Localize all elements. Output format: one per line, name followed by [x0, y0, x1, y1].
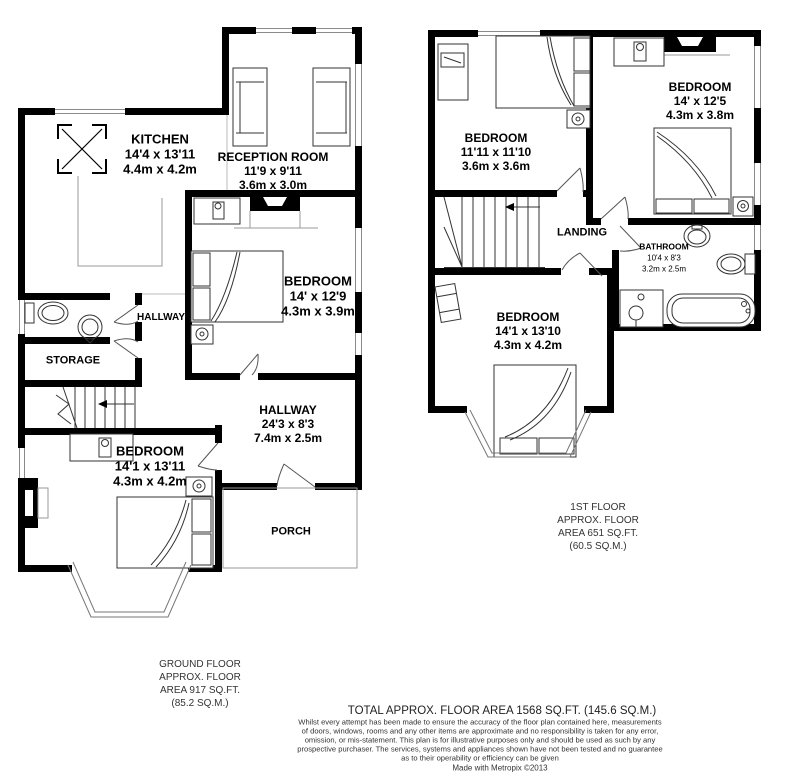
room-name: RECEPTION ROOM	[218, 150, 329, 164]
caption-line: GROUND FLOOR	[159, 658, 241, 671]
room-dims-ft: 11'11 x 11'10	[461, 145, 531, 159]
room-name: HALLWAY	[254, 403, 322, 417]
hallway-main-label: HALLWAY 24'3 x 8'3 7.4m x 2.5m	[254, 403, 322, 445]
kitchen-table-icon	[58, 125, 106, 173]
dresser-icon	[614, 38, 664, 66]
room-name: BEDROOM	[113, 444, 187, 459]
room-dims-ft: 14' x 12'5	[666, 94, 734, 108]
disclaimer-line: of doors, windows, rooms and any other i…	[297, 727, 662, 736]
room-dims-m: 4.3m x 4.2m	[113, 474, 187, 489]
first-bedroom-left-label: BEDROOM 11'11 x 11'10 3.6m x 3.6m	[461, 131, 531, 173]
wc-fixtures	[25, 302, 102, 343]
bathroom-label: BATHROOM 10'4 x 8'3 3.2m x 2.5m	[639, 242, 688, 275]
room-dims-m: 4.3m x 3.8m	[666, 108, 734, 122]
double-bed-icon	[654, 128, 731, 214]
room-name: BEDROOM	[666, 80, 734, 94]
first-bedroom-right-label: BEDROOM 14' x 12'5 4.3m x 3.8m	[666, 80, 734, 122]
double-bed-icon	[117, 497, 213, 568]
room-name: BEDROOM	[461, 131, 531, 145]
first-floor-stairs	[444, 197, 545, 268]
room-dims-m: 3.2m x 2.5m	[639, 264, 688, 275]
stairs-down-arrow-icon	[98, 400, 107, 408]
caption-line: 1ST FLOOR	[557, 501, 639, 514]
desk-icon	[438, 44, 468, 100]
floor-plan-page: KITCHEN 14'4 x 13'11 4.4m x 4.2m RECEPTI…	[0, 0, 800, 779]
caption-line: AREA 651 SQ.FT.	[557, 527, 639, 540]
disclaimer-line: prospective purchaser. The services, sys…	[297, 745, 662, 754]
room-name: LANDING	[557, 227, 607, 240]
room-name: HALLWAY	[137, 312, 185, 324]
room-name: STORAGE	[46, 355, 100, 368]
bedroom-right-furniture	[614, 38, 753, 216]
room-name: BATHROOM	[639, 242, 688, 253]
storage-label: STORAGE	[46, 355, 100, 368]
ground-floor-stairs	[56, 387, 135, 428]
double-bed-icon	[496, 36, 590, 108]
first-bedroom-front-label: BEDROOM 14'1 x 13'10 4.3m x 4.2m	[494, 310, 562, 352]
caption-line: (85.2 SQ.M.)	[159, 697, 241, 710]
room-dims-ft: 11'9 x 9'11	[218, 164, 329, 178]
room-dims-ft: 24'3 x 8'3	[254, 417, 322, 431]
bathroom-fixtures	[620, 225, 755, 327]
double-bed-icon	[191, 251, 283, 322]
landing-label: LANDING	[557, 227, 607, 240]
bathtub-icon	[667, 294, 755, 327]
first-floor-caption: 1ST FLOOR APPROX. FLOOR AREA 651 SQ.FT. …	[557, 501, 639, 553]
room-dims-m: 7.4m x 2.5m	[254, 431, 322, 445]
total-area-text: TOTAL APPROX. FLOOR AREA 1568 SQ.FT. (14…	[348, 705, 656, 717]
disclaimer-line: omission, or mis-statement. This plan is…	[297, 736, 662, 745]
vanity-basin-icon	[620, 290, 663, 327]
room-name: PORCH	[271, 526, 311, 539]
disclaimer-line: as to their operability or efficiency ca…	[297, 754, 662, 763]
room-dims-ft: 14'1 x 13'11	[113, 459, 187, 474]
bedroom-left-furniture	[438, 36, 590, 128]
hallway-small-label: HALLWAY	[137, 312, 185, 324]
reception-room-label: RECEPTION ROOM 11'9 x 9'11 3.6m x 3.0m	[218, 150, 329, 192]
room-name: BEDROOM	[494, 310, 562, 324]
room-dims-m: 3.6m x 3.6m	[461, 159, 531, 173]
bedroom-rear-label: BEDROOM 14' x 12'9 4.3m x 3.9m	[281, 274, 355, 319]
bedroom-front-label: BEDROOM 14'1 x 13'11 4.3m x 4.2m	[113, 444, 187, 489]
room-dims-ft: 14'4 x 13'11	[123, 147, 197, 162]
room-dims-m: 3.6m x 3.0m	[218, 178, 329, 192]
nightstand-lamp-icon	[186, 477, 212, 496]
chimney-breast-icon	[234, 197, 318, 228]
nightstand-lamp-icon	[191, 325, 213, 344]
nightstand-lamp-icon	[567, 110, 590, 128]
metropix-credit-text: Made with Metropix ©2013	[452, 764, 547, 773]
room-dims-ft: 10'4 x 8'3	[639, 253, 688, 264]
nightstand-lamp-icon	[733, 197, 753, 216]
room-name: KITCHEN	[123, 132, 197, 147]
kitchen-label: KITCHEN 14'4 x 13'11 4.4m x 4.2m	[123, 132, 197, 177]
dresser-icon	[194, 198, 240, 224]
double-bed-icon	[494, 365, 576, 457]
ground-floor-drawing	[16, 26, 364, 617]
kitchen-counter-icon	[78, 176, 162, 266]
porch-label: PORCH	[271, 526, 311, 539]
fireplace-icon	[25, 478, 48, 528]
armchair-icon	[435, 284, 461, 323]
toilet-icon	[717, 254, 755, 274]
caption-line: APPROX. FLOOR	[159, 671, 241, 684]
caption-line: APPROX. FLOOR	[557, 514, 639, 527]
ground-floor-bay-window	[68, 562, 191, 617]
toilet-icon	[25, 302, 68, 324]
room-dims-m: 4.3m x 4.2m	[494, 338, 562, 352]
ground-floor-caption: GROUND FLOOR APPROX. FLOOR AREA 917 SQ.F…	[159, 658, 241, 710]
room-dims-ft: 14' x 12'9	[281, 289, 355, 304]
disclaimer-text: Whilst every attempt has been made to en…	[297, 718, 662, 763]
room-dims-m: 4.3m x 3.9m	[281, 304, 355, 319]
bedroom-rear-furniture	[191, 197, 318, 344]
caption-line: AREA 917 SQ.FT.	[159, 684, 241, 697]
room-name: BEDROOM	[281, 274, 355, 289]
reception-sofas-icon	[233, 68, 350, 146]
room-dims-ft: 14'1 x 13'10	[494, 324, 562, 338]
room-dims-m: 4.4m x 4.2m	[123, 162, 197, 177]
disclaimer-line: Whilst every attempt has been made to en…	[297, 718, 662, 727]
caption-line: (60.5 SQ.M.)	[557, 540, 639, 553]
